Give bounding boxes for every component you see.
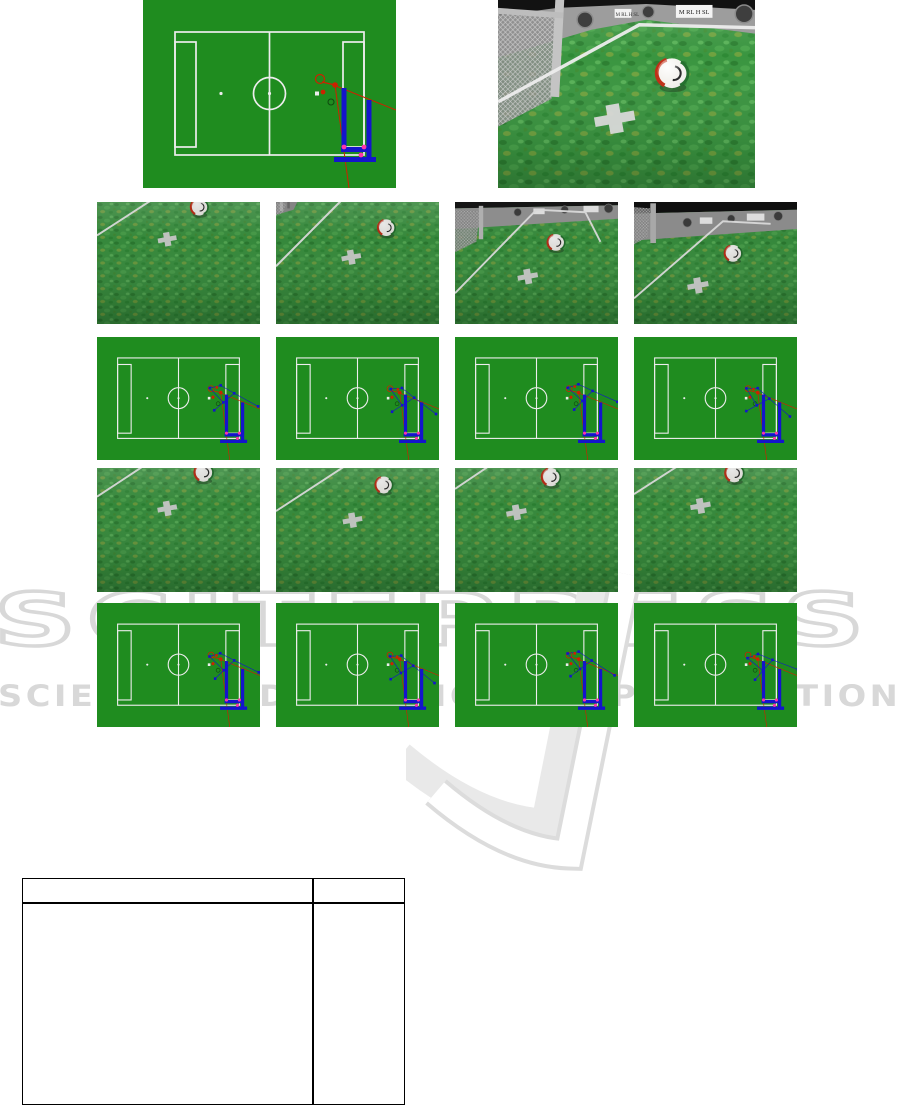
table-header-cell-right (317, 881, 401, 900)
camera-view-panel-8 (634, 468, 797, 592)
table-header-separator (23, 902, 404, 904)
soccer-ball (657, 58, 688, 92)
camera-view-large: M RL H SL M RL H SL (498, 0, 755, 188)
field-map-panel-8 (634, 603, 797, 727)
camera-view-panel-7 (455, 468, 618, 592)
camera-view-panel-4 (634, 202, 797, 324)
field-map-large (143, 0, 396, 188)
wall-logo-text-small: M RL H SL (616, 13, 640, 18)
camera-view-panel-6 (276, 468, 439, 592)
field-map-panel-6 (276, 603, 439, 727)
field-map-panel-2 (276, 337, 439, 460)
wall-logo-text: M RL H SL (679, 9, 710, 16)
table-header-cell-left (25, 881, 309, 900)
table-body-cell-left (25, 907, 309, 1101)
field-map-panel-4 (634, 337, 797, 460)
field-map-panel-3 (455, 337, 618, 460)
table-body-cell-right (317, 907, 401, 1101)
camera-view-panel-2 (276, 202, 439, 324)
paper-page: SCITEPRESS SCIENCE AND TECHNOLOGY PUBLIC… (0, 0, 901, 1110)
results-table (22, 878, 405, 1105)
table-column-separator (312, 879, 314, 1104)
field-map-panel-1 (97, 337, 260, 460)
camera-view-panel-3 (455, 202, 618, 324)
camera-view-panel-5 (97, 468, 260, 592)
camera-view-panel-1 (97, 202, 260, 324)
field-map-panel-5 (97, 603, 260, 727)
field-map-panel-7 (455, 603, 618, 727)
